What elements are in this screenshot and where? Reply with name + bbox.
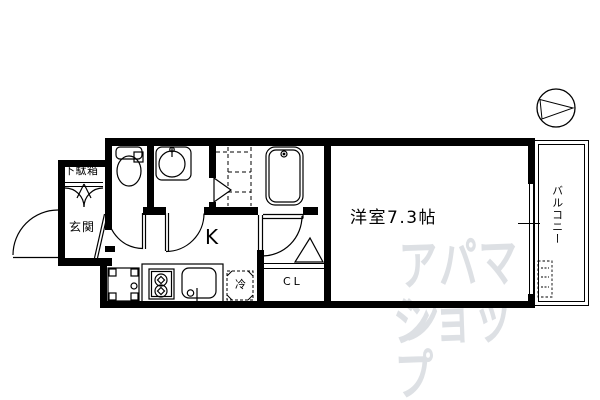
toilet-door-swing [108,213,146,249]
wall-segment [143,207,166,215]
wall-segment [147,146,154,207]
window-sash-tick [518,223,540,224]
balcony-label: バルコニー [550,185,563,257]
kitchen-label: K [205,226,218,249]
bathtub-icon [266,147,303,205]
kitchen-counter-icon [142,264,223,303]
wall-segment [324,146,331,306]
shoe-cabinet-shelf-line [65,182,103,187]
washroom-door-swing [166,213,205,252]
wall-segment [58,258,112,266]
meter-box-icon [538,261,552,297]
refrigerator-label: 冷 [235,279,246,292]
closet-label: CL [283,276,303,289]
toilet-icon [116,147,143,186]
wall-segment [204,207,258,215]
north-arrow-icon [537,89,575,127]
floor-plan: アパマン ショップ [0,0,600,400]
entrance-label: 玄関 [69,221,95,235]
fixtures-layer [0,0,600,400]
shoe-cabinet-doors [65,184,103,207]
shoe-cabinet-label: 下駄箱 [64,165,99,178]
washing-machine-pan-icon [108,268,139,301]
window [529,184,534,294]
wall-segment [209,146,216,178]
washbasin-icon [156,147,191,180]
main-room-label: 洋室7.3帖 [350,209,437,229]
wall-segment [105,138,112,230]
closet-track-line [264,263,324,269]
wall-segment [100,301,535,308]
wall-segment [257,250,264,306]
wall-segment [105,138,535,146]
room-door-swing [259,215,304,257]
wall-segment [528,294,535,308]
door-triangle [295,238,323,262]
wall-segment [303,207,318,215]
wall-segment [105,246,115,252]
wall-segment [528,138,535,184]
